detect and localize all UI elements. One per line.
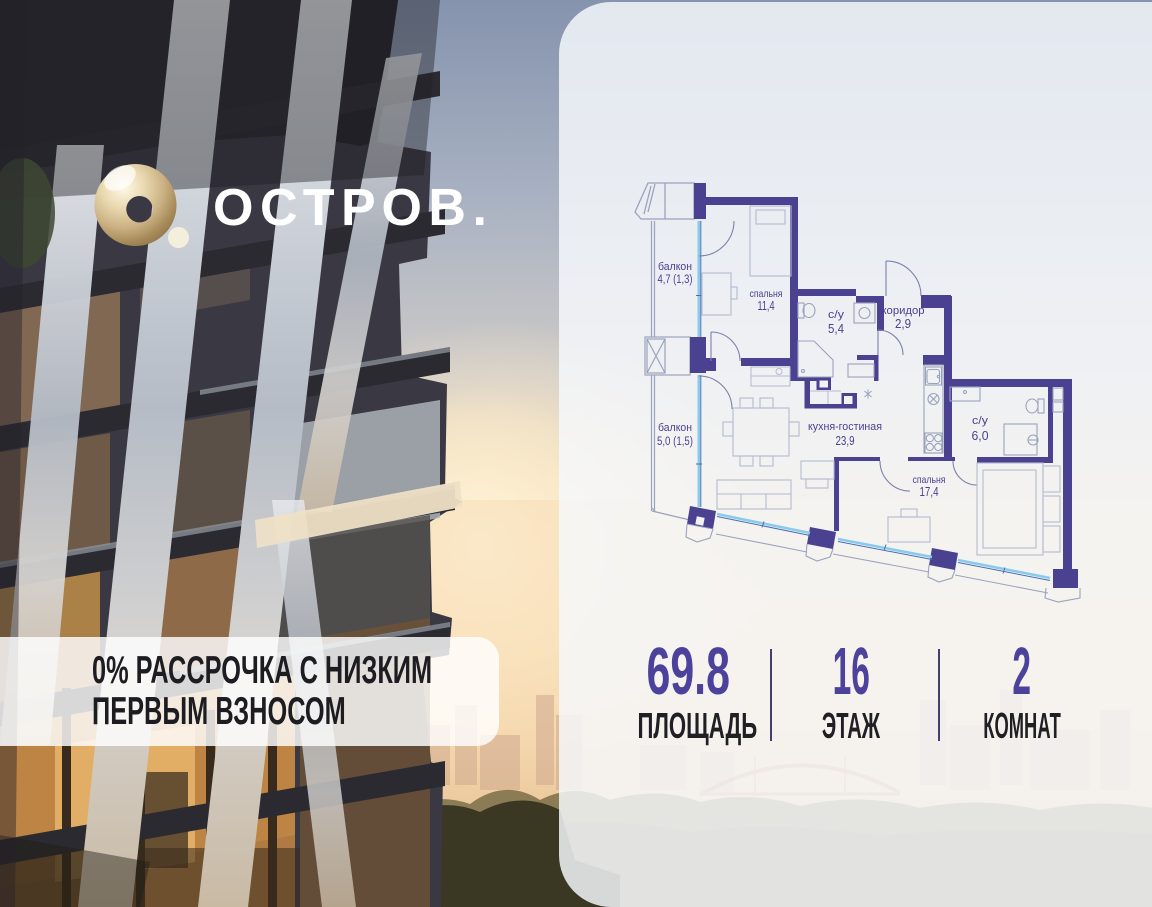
svg-text:17,4: 17,4	[920, 484, 939, 499]
svg-text:балкон: балкон	[658, 422, 692, 434]
svg-text:6,0: 6,0	[972, 428, 989, 443]
svg-text:5,4: 5,4	[828, 321, 844, 336]
svg-text:кухня-гостиная: кухня-гостиная	[808, 421, 882, 433]
svg-text:5,0 (1,5): 5,0 (1,5)	[657, 436, 693, 448]
svg-text:2,9: 2,9	[895, 316, 911, 331]
svg-text:балкон: балкон	[658, 261, 692, 273]
svg-text:с/у: с/у	[828, 309, 845, 321]
svg-text:11,4: 11,4	[758, 298, 775, 313]
svg-text:23,9: 23,9	[836, 433, 855, 448]
svg-text:с/у: с/у	[972, 415, 989, 427]
svg-text:4,7 (1,3): 4,7 (1,3)	[658, 274, 693, 286]
